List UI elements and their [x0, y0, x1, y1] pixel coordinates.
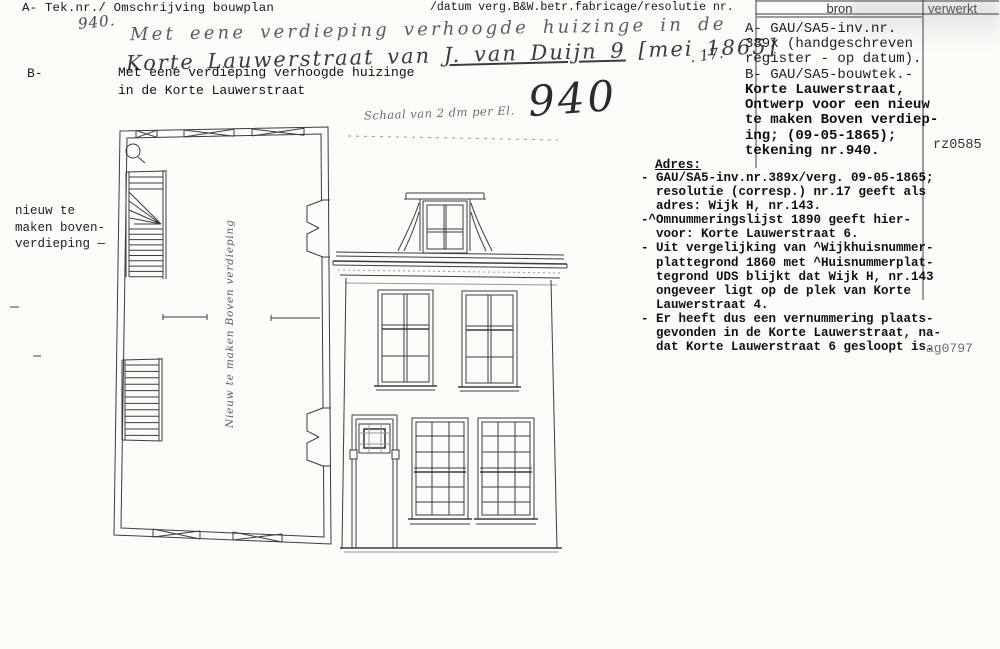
staircase-lower — [122, 358, 162, 441]
handwritten-big-number: 940 — [526, 71, 618, 126]
column-label-tekening: A- Tek.nr./ Omschrijving bouwplan — [22, 1, 274, 15]
upper-window-right — [458, 291, 521, 391]
typed-description: Met eene verdieping verhoogde huizinge i… — [118, 64, 414, 99]
verwerkt-code-bottom: ag0797 — [926, 341, 973, 356]
plan-rotated-label: Nieuw te maken Boven verdieping — [224, 246, 236, 428]
chimney-circle — [126, 144, 145, 163]
dormer-window — [398, 193, 492, 253]
floor-beams — [163, 314, 320, 321]
bron-source-b: Korte Lauwerstraat, Ontwerp voor een nie… — [745, 83, 938, 159]
bottom-wall-braces — [153, 529, 282, 542]
scale-bar — [348, 136, 558, 140]
lower-window-left — [408, 418, 472, 524]
facade-elevation — [333, 193, 567, 552]
b-prefix-label: B- — [27, 66, 43, 81]
column-label-bron: bron — [756, 1, 923, 16]
column-label-datum: /datum verg.B&W.betr.fabricage/resolutie… — [430, 1, 734, 14]
adres-notes: - GAU/SA5-inv.nr.389x/verg. 09-05-1865; … — [641, 171, 941, 354]
plan-window-opening-1 — [307, 200, 330, 257]
front-door — [350, 415, 399, 548]
bron-source-a: A- GAU/SA5-inv.nr. 389x (handgeschreven … — [745, 22, 921, 83]
door-transom — [359, 424, 390, 453]
upper-window-left — [374, 290, 437, 390]
handwritten-owner-name: J. van Duijn 9 — [443, 38, 625, 67]
plan-window-opening-2 — [307, 408, 331, 466]
archive-index-card: A- Tek.nr./ Omschrijving bouwplan /datum… — [0, 0, 1000, 649]
lower-window-right — [474, 418, 538, 524]
adres-heading: Adres: — [655, 157, 701, 172]
column-label-verwerkt: verwerkt — [928, 1, 977, 16]
main-cornice — [333, 252, 567, 285]
verwerkt-code-top: rz0585 — [933, 138, 982, 153]
ground-line — [340, 548, 562, 552]
margin-annotation: nieuw te maken boven- verdieping — — [15, 203, 105, 253]
pencil-marks — [10, 307, 41, 356]
floor-plan — [114, 127, 331, 544]
staircase-upper — [126, 170, 166, 279]
